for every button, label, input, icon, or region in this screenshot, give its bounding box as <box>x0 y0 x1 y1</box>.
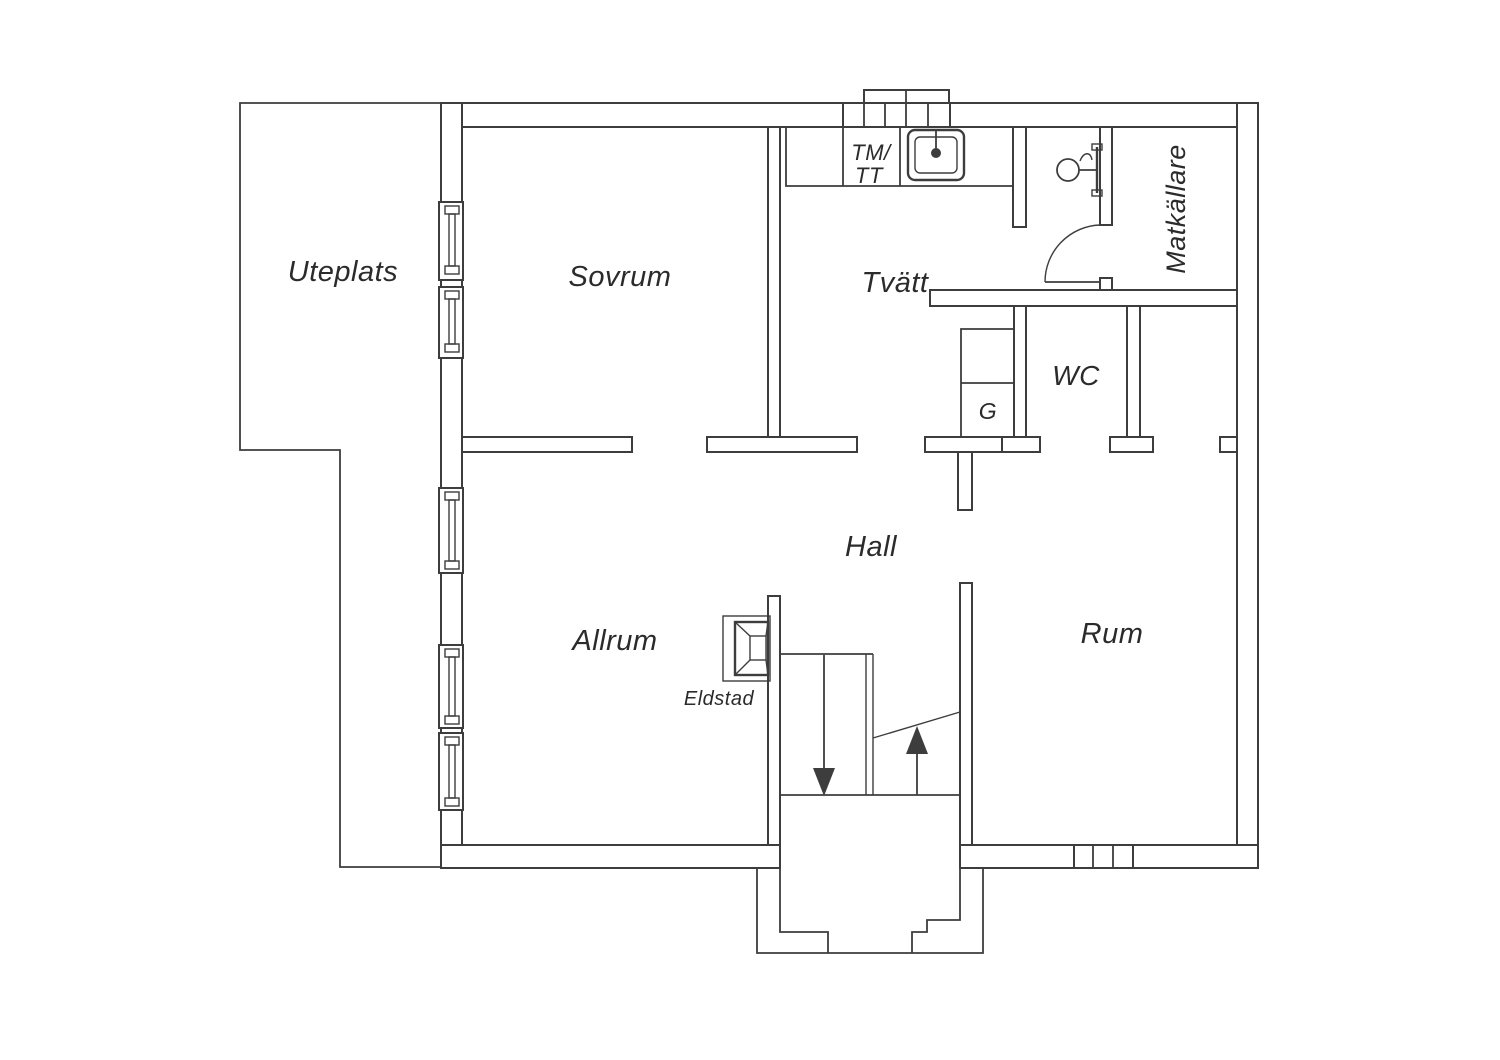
wall-shower-left <box>1013 127 1026 227</box>
interior-walls <box>462 127 1237 845</box>
window-rum-bottom <box>1074 845 1133 868</box>
room-label-allrum: Allrum <box>570 625 657 657</box>
room-label-hall: Hall <box>845 531 898 563</box>
mixer-hose <box>1080 154 1092 161</box>
fireplace-bevels <box>735 622 768 675</box>
laundry-counter <box>786 127 1013 186</box>
uteplats-boundary <box>240 103 441 867</box>
window-allrum-1 <box>439 488 463 573</box>
exterior-walls <box>441 103 1258 868</box>
sink-drain <box>931 148 941 158</box>
room-label-garderob: G <box>979 398 997 424</box>
exterior-wall-right <box>1237 103 1258 868</box>
vestibule-steps-right <box>912 868 960 953</box>
sink-icon <box>908 130 964 180</box>
window-allrum-3 <box>439 733 463 810</box>
room-label-rum: Rum <box>1081 618 1144 650</box>
vestibule-outer <box>757 867 983 953</box>
window-sovrum-2 <box>439 287 463 358</box>
wall-rum-left <box>960 583 972 845</box>
wall-shower-right-upper <box>1100 127 1112 225</box>
mixer-handle <box>1057 159 1079 181</box>
fireplace-icon <box>723 616 770 681</box>
stairs-up-arrow-icon <box>906 726 928 754</box>
room-label-matkallare: Matkällare <box>1161 144 1191 274</box>
stair-divider <box>866 654 873 795</box>
exterior-wall-bottom-left <box>441 845 780 868</box>
fireplace-outer <box>723 616 770 681</box>
door-arc <box>1045 225 1100 282</box>
window-sovrum-1 <box>439 202 463 280</box>
fireplace-opening <box>750 636 766 660</box>
wall-sovrum-bottom-b <box>707 437 857 452</box>
chimney-band <box>843 103 950 127</box>
stairs-down-arrow-icon <box>813 768 835 796</box>
floorplan-page: Uteplats Sovrum Tvätt Matkällare WC G Ha… <box>0 0 1500 1060</box>
room-label-wc: WC <box>1052 360 1100 391</box>
chimney-block <box>843 90 950 127</box>
wall-sovrum-right <box>768 127 780 437</box>
wall-band-matkallare-wc <box>930 290 1237 306</box>
room-label-sovrum: Sovrum <box>569 261 672 293</box>
room-label-uteplats: Uteplats <box>288 256 398 288</box>
wall-closet-jamb <box>1220 437 1237 452</box>
wall-wc-right <box>1127 306 1140 437</box>
shower-mixer-icon <box>1057 144 1102 196</box>
room-labels: Uteplats Sovrum Tvätt Matkällare WC G Ha… <box>288 140 1191 710</box>
wall-wc-right-jamb <box>1110 437 1153 452</box>
floorplan-svg: Uteplats Sovrum Tvätt Matkällare WC G Ha… <box>0 0 1500 1060</box>
wall-hall-t-stub <box>958 452 972 510</box>
window-frame <box>1074 845 1133 868</box>
wall-wc-left <box>1014 306 1026 437</box>
wall-sovrum-bottom-a <box>462 437 632 452</box>
vestibule-step-left <box>780 868 828 953</box>
wall-wc-left-jamb <box>1002 437 1040 452</box>
door-swing <box>1045 225 1100 282</box>
label-tmtt-line2: TT <box>855 163 884 188</box>
window-allrum-2 <box>439 645 463 728</box>
fireplace-body <box>735 622 768 675</box>
entrance-vestibule <box>757 867 983 953</box>
room-label-tvatt: Tvätt <box>862 267 930 299</box>
label-eldstad: Eldstad <box>684 688 755 710</box>
shower-room-fixtures <box>1045 144 1102 282</box>
staircase <box>780 654 960 796</box>
uteplats-outline <box>240 103 441 867</box>
label-tmtt-line1: TM/ <box>851 140 892 165</box>
window-frame <box>439 488 463 573</box>
